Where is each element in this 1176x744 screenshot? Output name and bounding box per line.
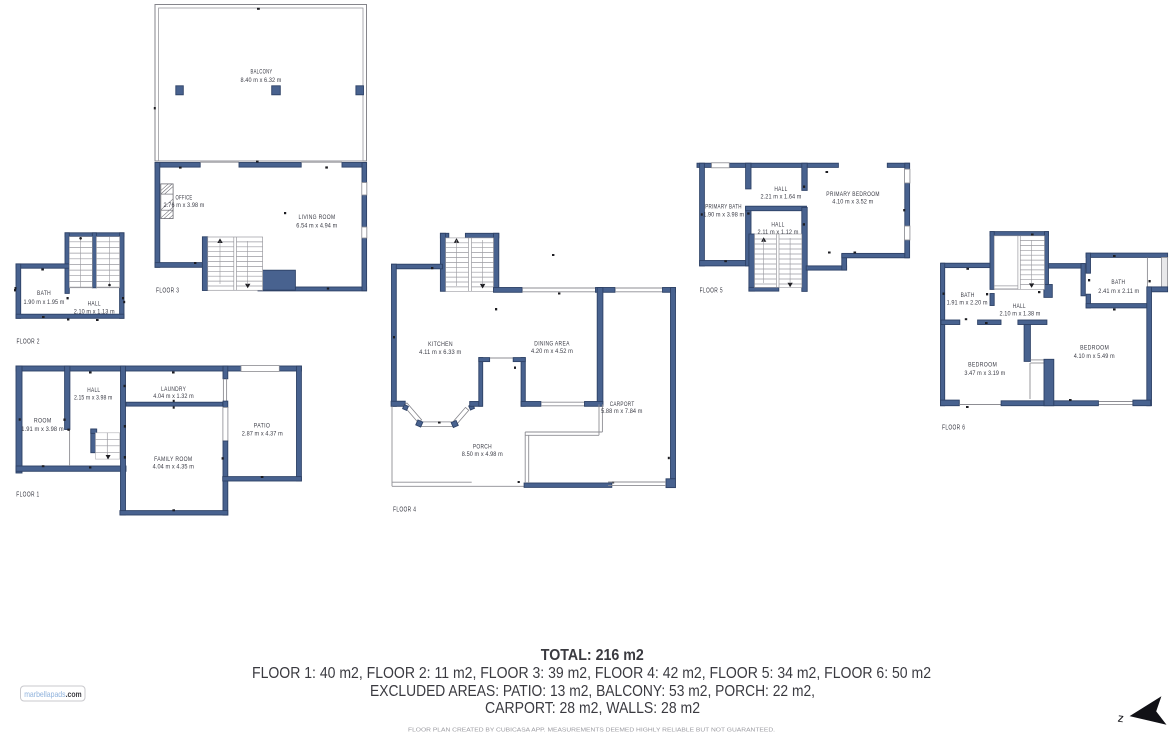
- svg-text:PATIO: PATIO: [254, 423, 270, 430]
- svg-text:PRIMARY BATH: PRIMARY BATH: [705, 204, 742, 211]
- svg-text:BALCONY: BALCONY: [251, 69, 273, 76]
- svg-text:FLOOR 6: FLOOR 6: [942, 425, 965, 432]
- svg-text:1.90 m x 3.98 m: 1.90 m x 3.98 m: [703, 212, 744, 219]
- svg-text:8.50 m x 4.98 m: 8.50 m x 4.98 m: [462, 451, 503, 458]
- svg-text:DINING AREA: DINING AREA: [534, 340, 570, 347]
- svg-text:BATH: BATH: [37, 290, 51, 297]
- svg-text:1.91 m x 2.20 m: 1.91 m x 2.20 m: [947, 300, 988, 307]
- svg-text:HALL: HALL: [88, 300, 101, 307]
- svg-text:FLOOR 4: FLOOR 4: [393, 507, 416, 514]
- svg-text:4.10 m x 3.52 m: 4.10 m x 3.52 m: [832, 198, 873, 205]
- svg-text:5.88 m x 7.84 m: 5.88 m x 7.84 m: [601, 408, 642, 415]
- svg-text:2.21 m x 1.64 m: 2.21 m x 1.64 m: [761, 193, 802, 200]
- svg-text:ROOM: ROOM: [34, 417, 52, 424]
- svg-text:LIVING ROOM: LIVING ROOM: [299, 214, 336, 221]
- svg-text:FLOOR PLAN CREATED BY CUBICASA: FLOOR PLAN CREATED BY CUBICASA APP. MEAS…: [408, 728, 775, 734]
- svg-text:OFFICE: OFFICE: [176, 195, 193, 202]
- svg-text:FLOOR 2: FLOOR 2: [17, 339, 40, 346]
- svg-text:CARPORT: 28 m2, WALLS: 28 m2: CARPORT: 28 m2, WALLS: 28 m2: [485, 700, 700, 717]
- svg-text:FLOOR 5: FLOOR 5: [700, 288, 723, 295]
- svg-text:FAMILY ROOM: FAMILY ROOM: [154, 456, 192, 463]
- svg-text:FLOOR 1: 40 m2, FLOOR 2: 11 m2: FLOOR 1: 40 m2, FLOOR 2: 11 m2, FLOOR 3:…: [252, 665, 931, 682]
- svg-text:2.87 m x 4.37 m: 2.87 m x 4.37 m: [242, 431, 283, 438]
- svg-text:TOTAL: 216 m2: TOTAL: 216 m2: [541, 647, 644, 664]
- svg-text:EXCLUDED AREAS: PATIO: 13 m2,: EXCLUDED AREAS: PATIO: 13 m2, BALCONY: 5…: [370, 683, 815, 700]
- svg-text:marbellapads.com: marbellapads.com: [24, 689, 81, 699]
- svg-text:4.11 m x 6.33 m: 4.11 m x 6.33 m: [419, 349, 461, 356]
- svg-text:8.40 m x 6.32 m: 8.40 m x 6.32 m: [241, 77, 282, 84]
- svg-text:2.76 m x 3.98 m: 2.76 m x 3.98 m: [164, 202, 205, 209]
- svg-text:FLOOR 1: FLOOR 1: [16, 492, 39, 499]
- svg-text:BATH: BATH: [1111, 279, 1125, 286]
- svg-text:2.10 m x 1.13 m: 2.10 m x 1.13 m: [74, 308, 115, 315]
- svg-text:HALL: HALL: [1013, 303, 1026, 310]
- svg-text:4.04 m x 1.32 m: 4.04 m x 1.32 m: [153, 393, 194, 400]
- svg-text:PRIMARY BEDROOM: PRIMARY BEDROOM: [826, 191, 880, 198]
- svg-text:HALL: HALL: [774, 186, 787, 193]
- svg-text:BATH: BATH: [961, 292, 975, 299]
- svg-text:HALL: HALL: [87, 387, 100, 394]
- svg-text:2.15 m x 3.98 m: 2.15 m x 3.98 m: [74, 395, 113, 402]
- svg-text:BEDROOM: BEDROOM: [1080, 345, 1109, 352]
- svg-text:1.91 m x 3.98 m: 1.91 m x 3.98 m: [21, 426, 64, 433]
- svg-text:PORCH: PORCH: [473, 444, 492, 451]
- svg-text:1.90 m x 1.95 m: 1.90 m x 1.95 m: [24, 299, 65, 306]
- svg-text:CARPORT: CARPORT: [610, 401, 635, 408]
- svg-text:KITCHEN: KITCHEN: [428, 341, 453, 348]
- svg-text:2.11 m x 1.12 m: 2.11 m x 1.12 m: [758, 229, 799, 236]
- svg-text:2.41 m x 2.11 m: 2.41 m x 2.11 m: [1098, 288, 1139, 295]
- svg-text:4.20 m x 4.52 m: 4.20 m x 4.52 m: [531, 348, 573, 355]
- svg-text:4.10 m x 5.49 m: 4.10 m x 5.49 m: [1074, 353, 1115, 360]
- svg-text:3.47 m x 3.19 m: 3.47 m x 3.19 m: [964, 370, 1005, 377]
- svg-text:2.10 m x 1.38 m: 2.10 m x 1.38 m: [1000, 311, 1041, 318]
- svg-text:HALL: HALL: [771, 221, 784, 228]
- svg-text:4.04 m x 4.35 m: 4.04 m x 4.35 m: [153, 464, 194, 471]
- svg-text:FLOOR 3: FLOOR 3: [156, 288, 179, 295]
- svg-text:6.54 m x 4.94 m: 6.54 m x 4.94 m: [296, 223, 337, 230]
- svg-text:BEDROOM: BEDROOM: [968, 361, 997, 368]
